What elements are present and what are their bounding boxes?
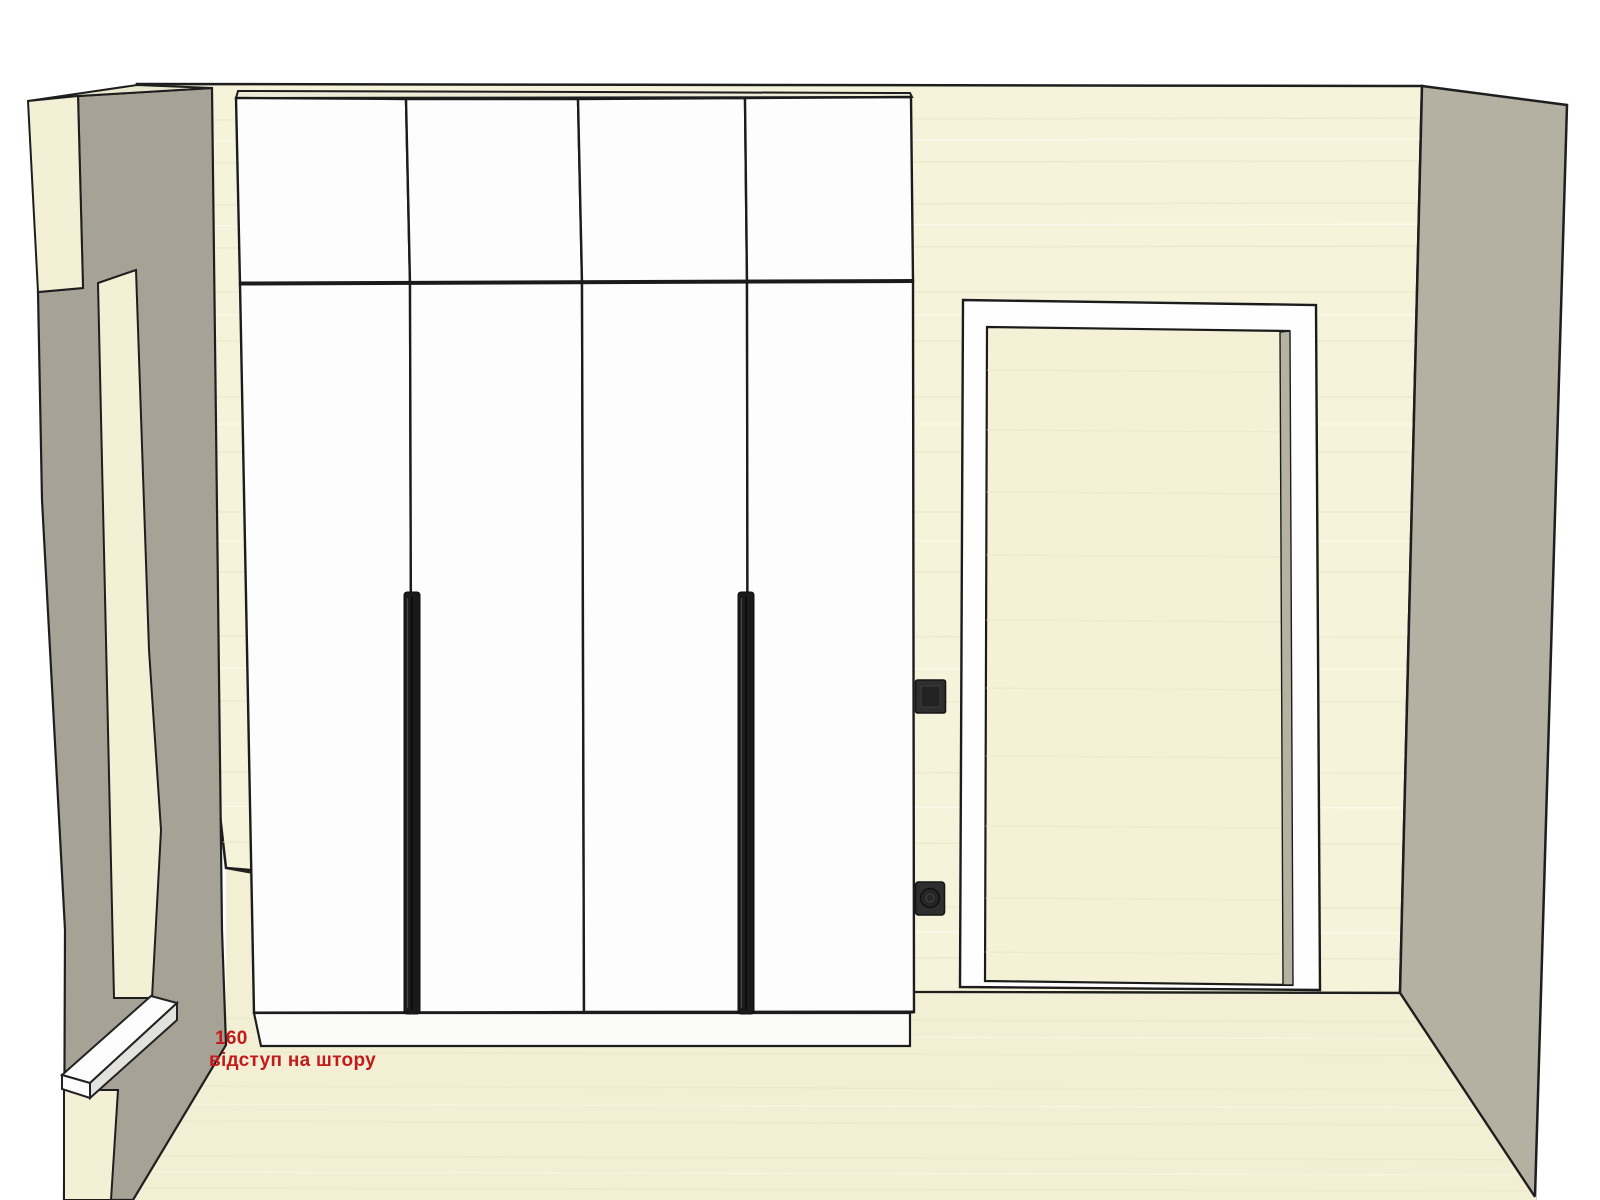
wardrobe-door-1	[240, 283, 412, 1013]
power-socket	[916, 882, 945, 915]
door-leaf	[985, 327, 1292, 985]
annotation-offset-label: відступ на штору	[209, 1050, 376, 1072]
interior-door	[960, 300, 1320, 990]
wardrobe-handle-right	[738, 592, 754, 1014]
annotation-offset: 160 відступ на штору	[209, 1028, 376, 1072]
room-render: 160 відступ на штору	[0, 0, 1600, 1200]
annotation-offset-value: 160	[209, 1028, 376, 1050]
wardrobe-door-2	[410, 282, 584, 1013]
wardrobe-mezzanine-door-4	[745, 97, 913, 282]
light-switch	[916, 680, 946, 713]
left-wall-end-face-upper	[28, 96, 83, 292]
scene-svg	[0, 0, 1600, 1200]
left-wall-pier-face-lower	[64, 1090, 118, 1200]
wardrobe-mezzanine-door-3	[578, 98, 747, 282]
wardrobe-handle-left	[404, 592, 420, 1014]
wardrobe-door-3	[582, 282, 748, 1012]
wardrobe-mezzanine-divider	[240, 281, 913, 284]
wardrobe	[236, 91, 914, 1046]
wardrobe-mezzanine-door-1	[236, 98, 410, 284]
wardrobe-door-4	[747, 281, 914, 1012]
door-hinge-gap	[1280, 331, 1293, 985]
wardrobe-mezzanine-door-2	[406, 99, 582, 283]
